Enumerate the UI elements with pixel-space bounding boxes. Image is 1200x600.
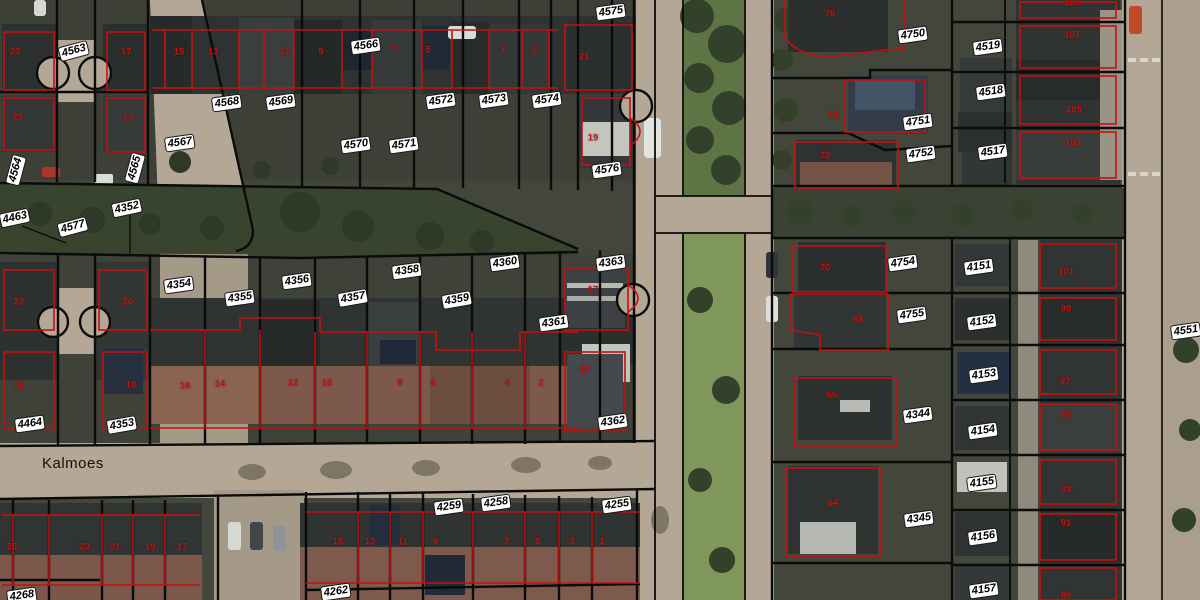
aerial-map-canvas[interactable]: 4563456645684569456745644565457045714572… xyxy=(0,0,1200,600)
aerial-imagery xyxy=(0,0,1200,600)
street-name-label: Kalmoes xyxy=(42,455,104,472)
